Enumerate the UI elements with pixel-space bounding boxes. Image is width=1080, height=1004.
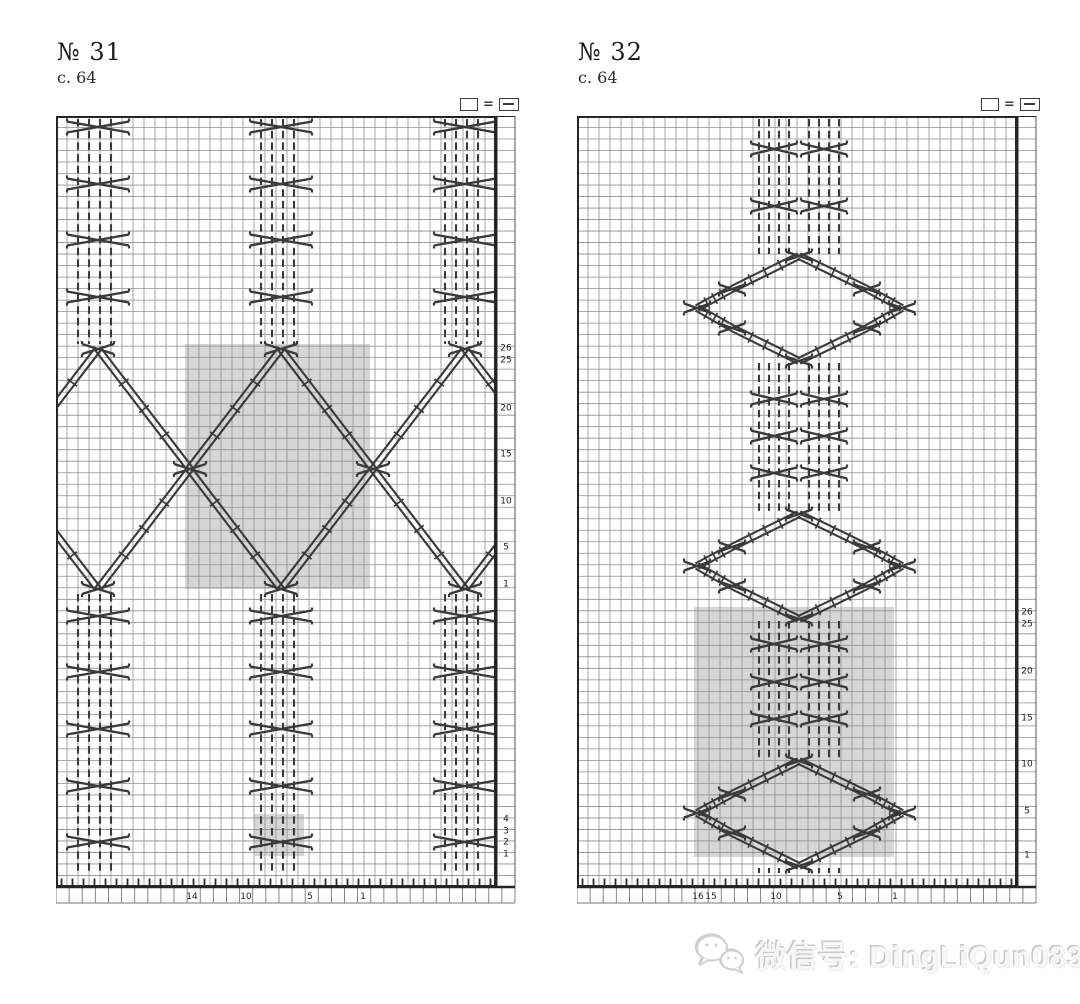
row-number: 2: [503, 838, 509, 848]
chart-32-page-ref: c. 64: [578, 68, 618, 87]
row-numbers: 2625201510514321: [500, 344, 512, 860]
grid-lines: [577, 116, 1017, 887]
watermark: 微信号: DingLiQun0830: [693, 931, 1080, 977]
page: { "charts": [ { "title": "№ 31", "page_r…: [0, 0, 1080, 1004]
row-number: 5: [1024, 807, 1030, 817]
knitting-chart-grid-32: 26252015105116151051: [577, 116, 1039, 908]
row-number: 15: [1021, 714, 1032, 724]
stitch-number-row: [577, 887, 1036, 903]
stitch-number: 10: [240, 892, 252, 902]
row-number: 20: [500, 404, 512, 414]
row-number: 4: [503, 815, 509, 825]
stitch-number-row: [56, 887, 515, 903]
chart-31-page-ref: c. 64: [57, 68, 97, 87]
row-number: 26: [500, 344, 512, 354]
stitch-number: 15: [705, 892, 716, 902]
row-number: 25: [1021, 620, 1032, 630]
legend-equals: =: [483, 98, 494, 111]
row-number: 26: [1021, 608, 1033, 618]
row-number: 5: [503, 543, 509, 553]
purl-symbol-square: [499, 98, 519, 111]
row-number: 1: [503, 580, 509, 590]
stitch-numbers: 16151051: [692, 892, 898, 902]
watermark-text: 微信号: DingLiQun0830: [756, 932, 1080, 976]
knit-symbol-square: [460, 98, 478, 111]
stitch-number: 1: [360, 892, 366, 902]
stitch-number: 1: [892, 892, 898, 902]
shaded-repeat-region: [694, 607, 894, 857]
wechat-icon: [693, 931, 747, 977]
stitch-number: 16: [692, 892, 704, 902]
chart-31-legend: =: [460, 96, 519, 112]
row-number: 3: [503, 827, 509, 837]
row-number: 1: [1024, 851, 1030, 861]
stitch-number: 5: [307, 892, 313, 902]
stitch-number: 10: [770, 892, 782, 902]
stitch-number: 5: [837, 892, 843, 902]
grid-lines: [56, 116, 496, 887]
knitting-chart-grid-31: 2625201510514321141051: [56, 116, 518, 908]
row-number: 10: [1021, 760, 1033, 770]
row-number: 15: [500, 450, 511, 460]
chart-31-title: № 31: [57, 38, 122, 66]
row-number: 1: [503, 850, 509, 860]
row-number: 25: [500, 356, 511, 366]
legend-equals: =: [1004, 98, 1015, 111]
chart-32-title: № 32: [578, 38, 643, 66]
stitch-number: 14: [186, 892, 198, 902]
purl-symbol-square: [1020, 98, 1040, 111]
row-number-column: [1017, 116, 1036, 887]
knit-symbol-square: [981, 98, 999, 111]
chart-32-legend: =: [981, 96, 1040, 112]
row-number: 10: [500, 497, 512, 507]
row-number: 20: [1021, 667, 1033, 677]
